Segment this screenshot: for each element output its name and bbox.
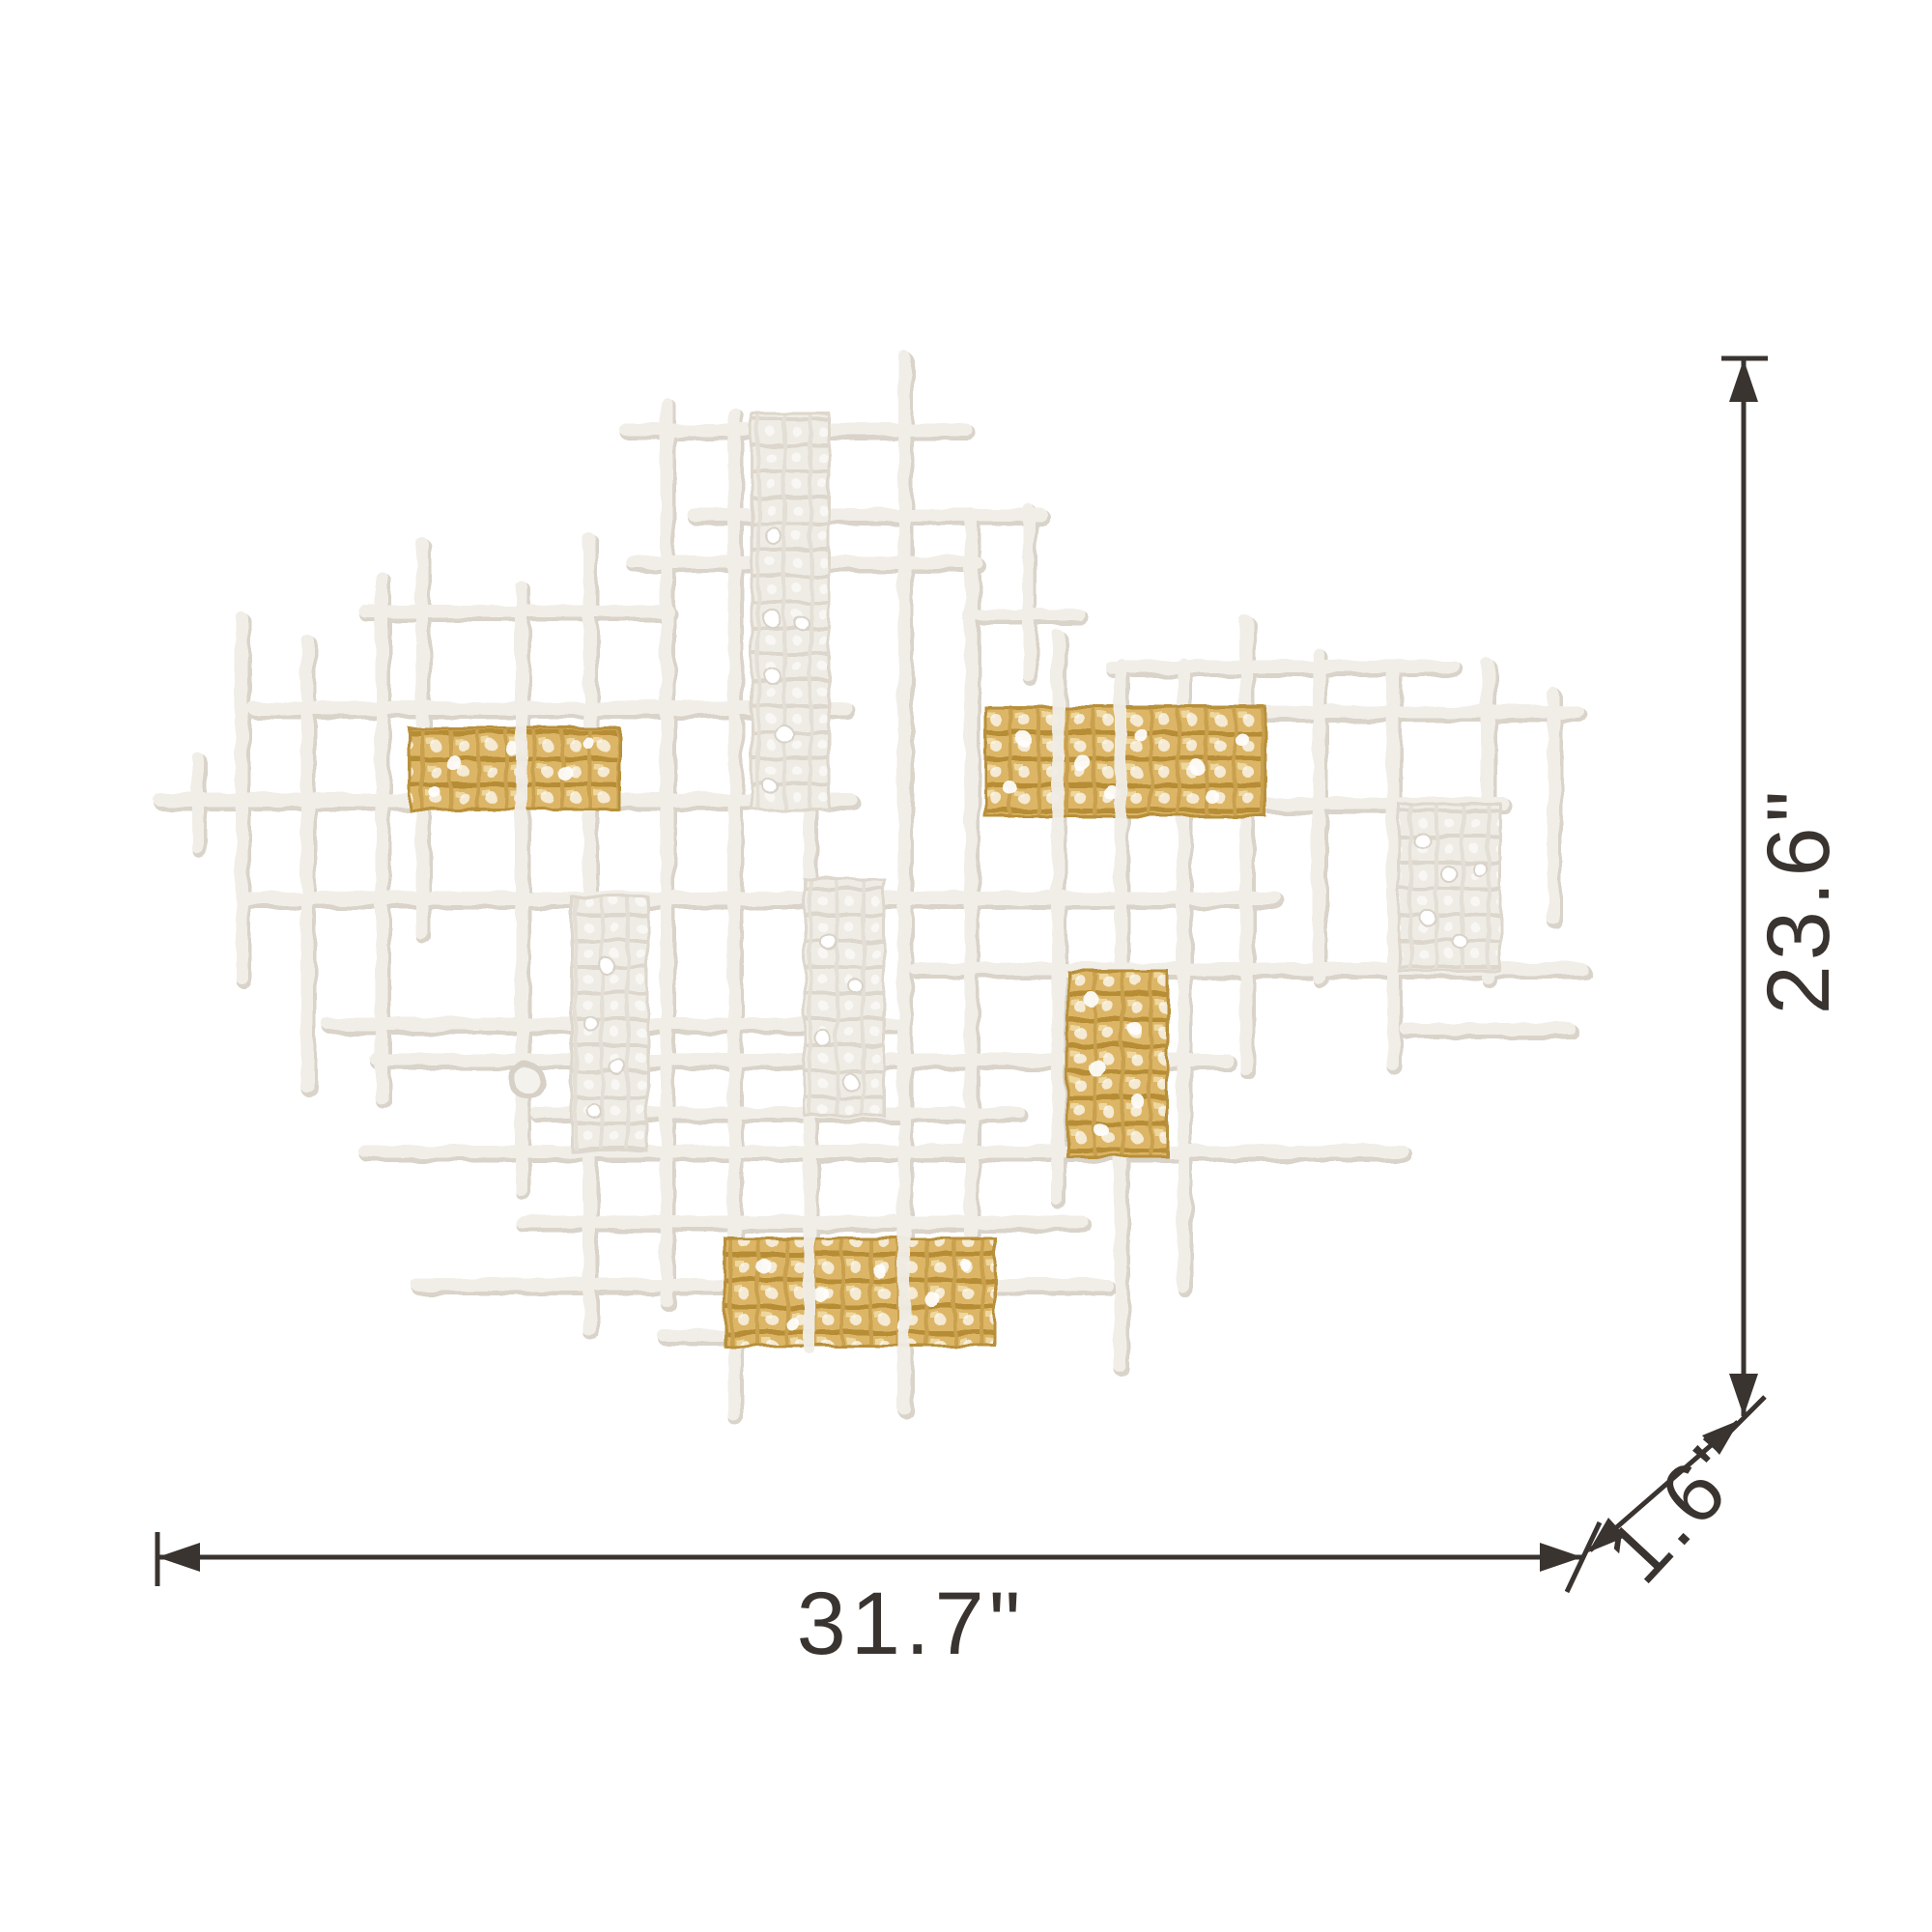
gold-woven-panel-bottom: [724, 1238, 995, 1346]
dimension-diagram: 31.7" 23.6" 1.6": [0, 0, 1932, 1932]
height-dimension: 23.6": [1721, 358, 1848, 1439]
wall-art-sculpture: [160, 357, 1583, 1418]
arrowhead-up-icon: [1729, 359, 1758, 402]
product-image-canvas: 31.7" 23.6" 1.6": [0, 0, 1932, 1932]
depth-dimension: 1.6": [1588, 1415, 1770, 1601]
hanger-loop: [511, 1065, 542, 1095]
width-dimension: 31.7": [157, 1522, 1600, 1673]
arrowhead-left-icon: [157, 1543, 200, 1572]
height-dimension-label: 23.6": [1749, 786, 1848, 1015]
width-dimension-label: 31.7": [797, 1575, 1026, 1673]
gold-woven-panel-right-middle: [1067, 971, 1167, 1156]
white-woven-panel: [572, 896, 647, 1151]
white-woven-panel: [1399, 804, 1500, 971]
white-woven-panel: [752, 413, 829, 810]
dimension-annotations: 31.7" 23.6" 1.6": [157, 358, 1848, 1673]
depth-dimension-label: 1.6": [1588, 1415, 1770, 1601]
